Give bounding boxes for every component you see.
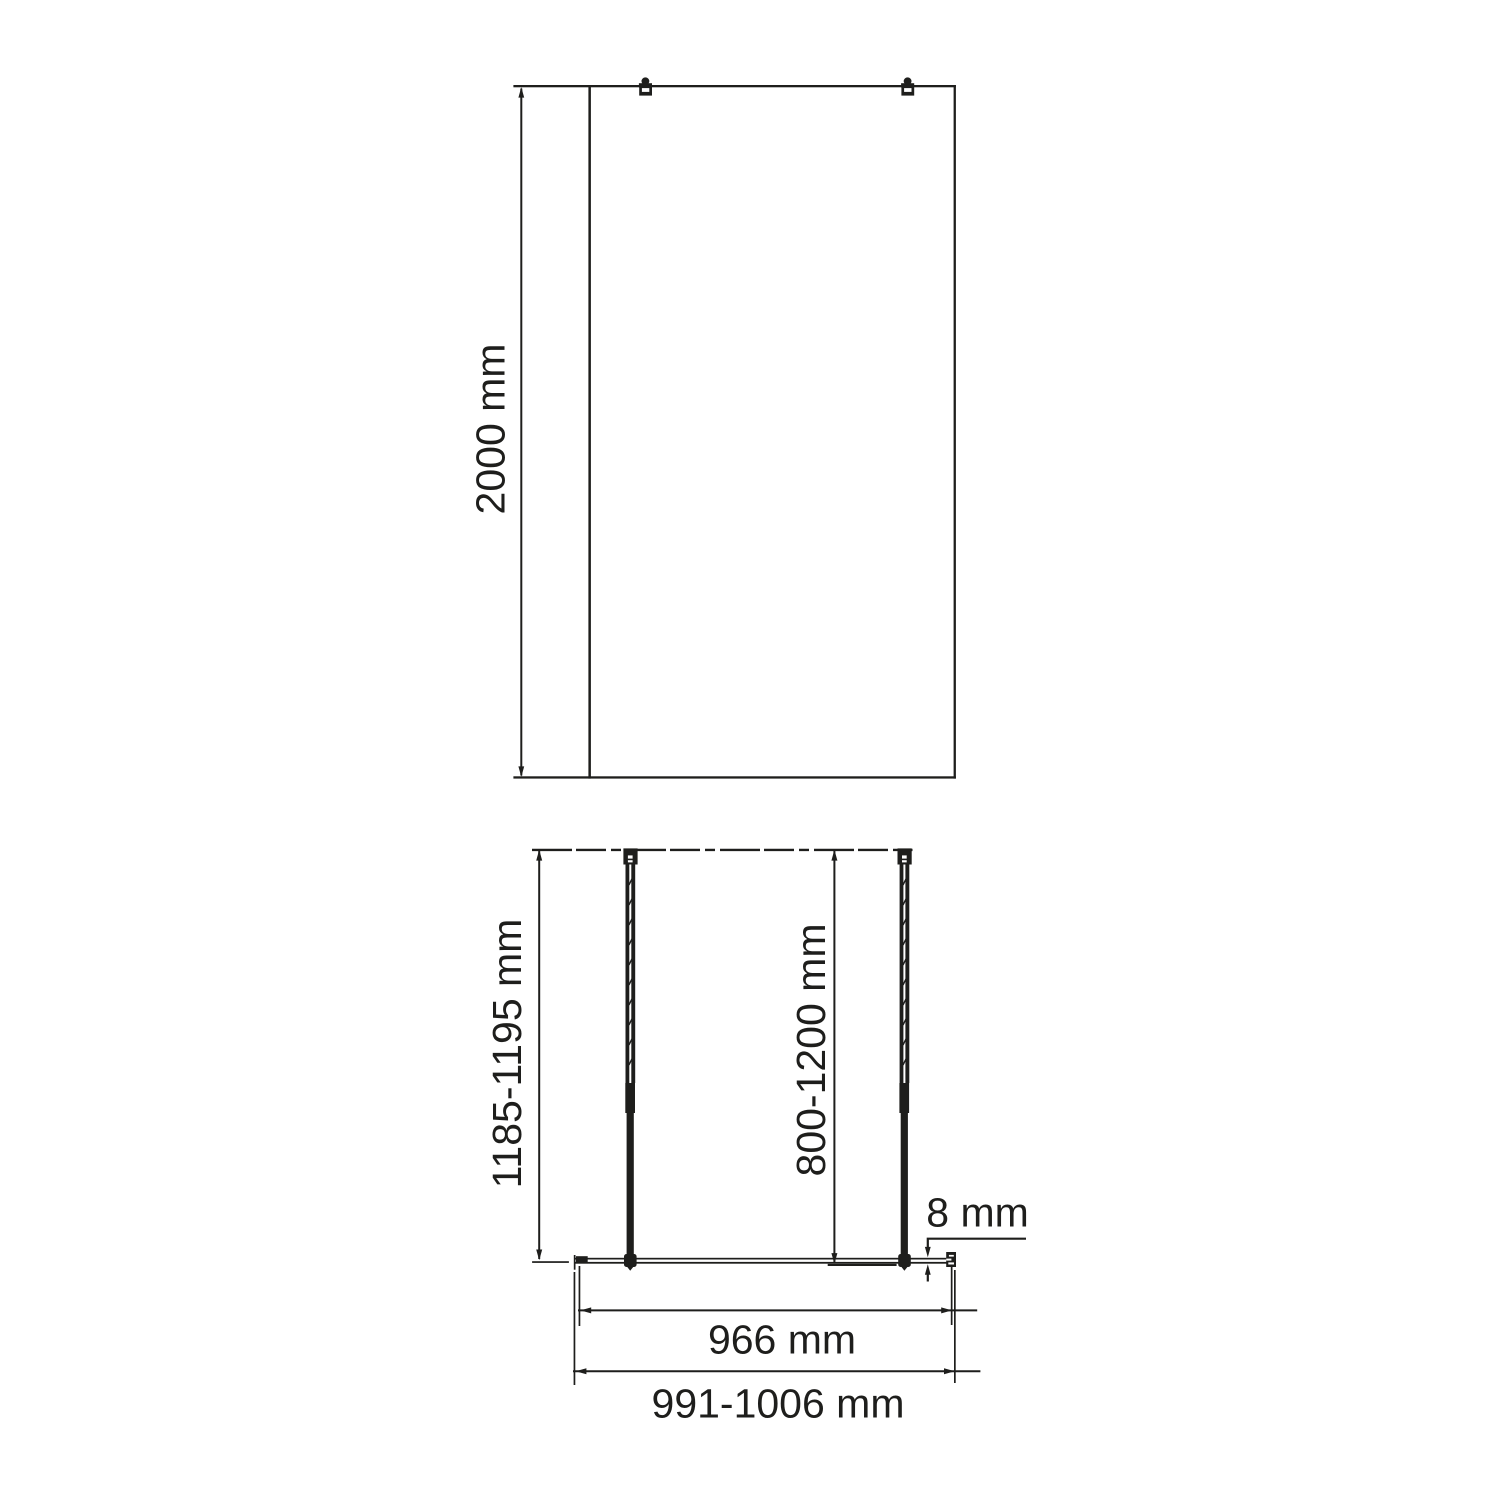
svg-text:991-1006 mm: 991-1006 mm [652, 1381, 905, 1427]
svg-text:966 mm: 966 mm [708, 1317, 856, 1363]
svg-text:2000 mm: 2000 mm [468, 344, 514, 515]
svg-text:8 mm: 8 mm [926, 1190, 1029, 1236]
svg-text:800-1200 mm: 800-1200 mm [788, 924, 834, 1177]
svg-text:1185-1195 mm: 1185-1195 mm [484, 919, 530, 1189]
